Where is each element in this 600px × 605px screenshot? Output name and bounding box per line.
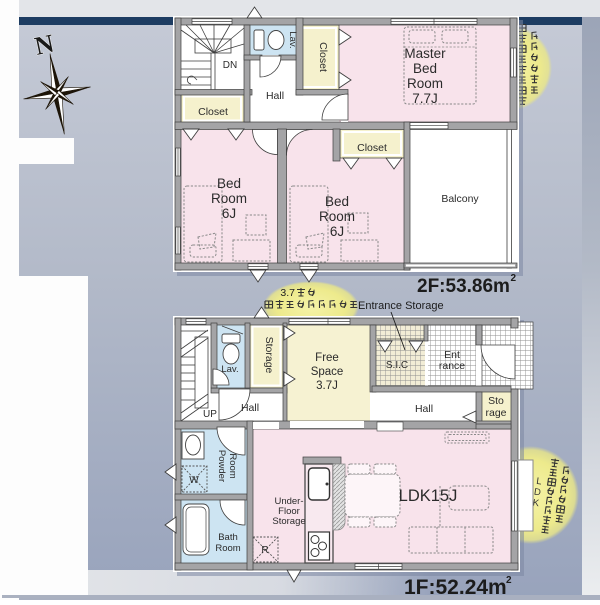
svg-text:Closet: Closet (198, 106, 228, 118)
svg-text:Sto: Sto (488, 395, 504, 407)
svg-text:Balcony: Balcony (441, 193, 479, 205)
svg-text:3.7: 3.7 (280, 287, 295, 299)
svg-text:Room: Room (215, 543, 240, 554)
svg-text:Hall: Hall (266, 90, 284, 102)
svg-text:Bed: Bed (413, 61, 437, 76)
svg-text:6J: 6J (222, 206, 236, 221)
svg-text:rance: rance (439, 360, 465, 372)
svg-text:W: W (189, 475, 199, 486)
svg-text:Master: Master (404, 46, 446, 61)
svg-text:R: R (261, 545, 268, 556)
svg-text:Lav.: Lav. (221, 364, 238, 375)
svg-text:LDK15J: LDK15J (399, 487, 458, 505)
svg-text:Room: Room (211, 191, 247, 206)
svg-text:Space: Space (311, 366, 344, 378)
svg-text:Room: Room (319, 209, 355, 224)
svg-text:Storage: Storage (272, 516, 305, 527)
svg-text:DN: DN (223, 60, 237, 71)
svg-text:Lav.: Lav. (287, 31, 298, 48)
svg-text:1F:52.24m: 1F:52.24m (404, 576, 507, 599)
svg-text:Room: Room (227, 453, 238, 478)
svg-text:Closet: Closet (317, 42, 329, 72)
svg-text:S.I.C: S.I.C (386, 360, 408, 371)
svg-text:rage: rage (485, 407, 506, 419)
svg-text:3.7J: 3.7J (316, 380, 338, 392)
svg-text:Bed: Bed (217, 176, 241, 191)
svg-text:UP: UP (203, 409, 217, 420)
svg-text:Room: Room (407, 76, 443, 91)
svg-text:Hall: Hall (241, 402, 259, 414)
svg-text:6J: 6J (330, 224, 344, 239)
svg-text:Bed: Bed (325, 194, 349, 209)
svg-text:2: 2 (506, 575, 512, 586)
svg-text:Storage: Storage (263, 337, 275, 374)
svg-text:Free: Free (315, 352, 339, 364)
svg-text:Powder: Powder (216, 450, 227, 482)
svg-text:Closet: Closet (357, 142, 387, 154)
svg-text:2: 2 (511, 273, 517, 284)
svg-text:2F:53.86m: 2F:53.86m (417, 276, 510, 297)
svg-text:Entrance Storage: Entrance Storage (358, 300, 444, 312)
svg-text:Bath: Bath (218, 532, 238, 543)
svg-text:Hall: Hall (415, 403, 433, 415)
svg-text:7.7J: 7.7J (412, 91, 438, 106)
